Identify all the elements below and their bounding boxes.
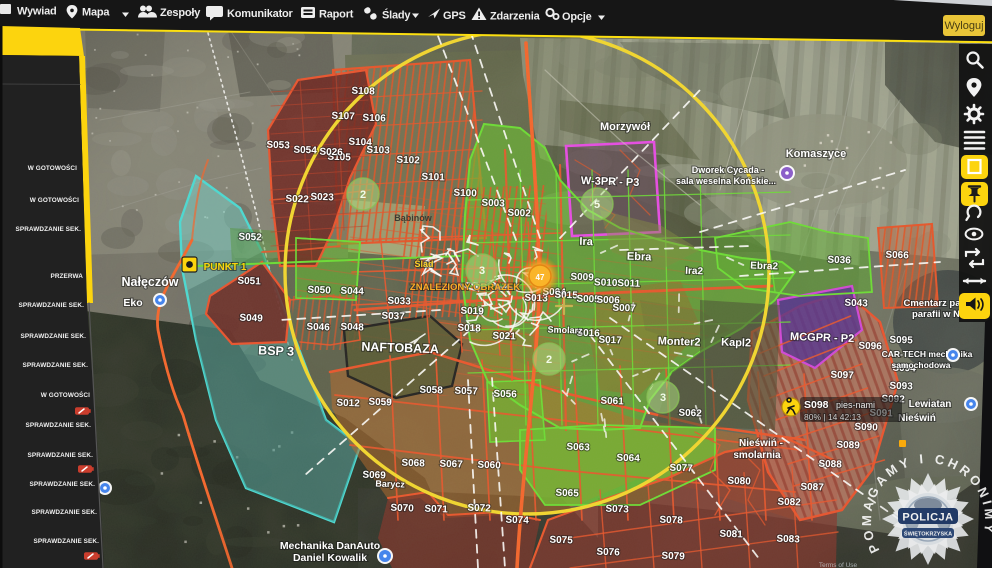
svg-text:Komunikator: Komunikator [227, 8, 294, 20]
svg-text:Kapl2: Kapl2 [721, 336, 751, 349]
svg-text:S097: S097 [830, 370, 854, 382]
svg-text:Mapa: Mapa [82, 6, 110, 18]
svg-text:samochodowa: samochodowa [891, 360, 950, 370]
svg-text:S075: S075 [549, 535, 573, 547]
svg-text:S096: S096 [858, 341, 882, 353]
svg-text:S049: S049 [239, 313, 263, 325]
svg-text:Opcje: Opcje [562, 11, 592, 23]
svg-text:sala weselna Końskie...: sala weselna Końskie... [676, 176, 776, 186]
svg-text:Bąbinów: Bąbinów [394, 213, 432, 223]
svg-text:Terms of Use: Terms of Use [819, 562, 858, 568]
svg-text:S098: S098 [804, 399, 829, 411]
svg-text:S088: S088 [818, 459, 842, 471]
svg-text:S090: S090 [854, 422, 878, 434]
svg-text:Eko: Eko [123, 297, 142, 309]
svg-text:S018: S018 [457, 323, 481, 335]
svg-text:Ślady: Ślady [382, 8, 411, 21]
svg-text:S052: S052 [238, 232, 262, 244]
svg-text:S060: S060 [477, 460, 501, 472]
svg-text:SPRAWDZANIE SEK.: SPRAWDZANIE SEK. [27, 452, 93, 459]
svg-text:Dworek Cycada -: Dworek Cycada - [692, 165, 765, 175]
svg-text:S087: S087 [800, 482, 824, 494]
svg-text:S026: S026 [319, 147, 343, 159]
svg-text:S036: S036 [827, 255, 851, 267]
svg-text:S007: S007 [612, 303, 636, 315]
svg-text:S072: S072 [467, 503, 491, 515]
svg-text:S082: S082 [777, 497, 801, 509]
svg-text:W GOTOWOŚCI: W GOTOWOŚCI [30, 195, 79, 204]
svg-text:S081: S081 [719, 529, 743, 541]
svg-text:S106: S106 [362, 113, 386, 125]
svg-text:W-3PR - P3: W-3PR - P3 [581, 175, 640, 189]
svg-text:Ślad: Ślad [414, 258, 433, 269]
svg-text:Daniel Kowalik: Daniel Kowalik [293, 552, 367, 564]
svg-text:S017: S017 [598, 335, 622, 347]
svg-text:S044: S044 [340, 286, 364, 298]
svg-text:80% | 14 42:13: 80% | 14 42:13 [804, 412, 861, 422]
svg-text:SPRAWDZANIE SEK.: SPRAWDZANIE SEK. [33, 538, 99, 545]
svg-text:smolarnia: smolarnia [733, 450, 781, 461]
svg-text:S057: S057 [454, 386, 478, 398]
svg-text:S002: S002 [507, 208, 531, 220]
svg-text:S012: S012 [336, 398, 360, 410]
svg-text:S080: S080 [727, 476, 751, 488]
svg-text:S076: S076 [596, 547, 620, 559]
svg-text:SPRAWDZANIE SEK.: SPRAWDZANIE SEK. [31, 509, 97, 516]
svg-text:Wywiad: Wywiad [17, 6, 57, 18]
svg-text:S093: S093 [889, 381, 913, 393]
svg-text:SPRAWDZANIE SEK.: SPRAWDZANIE SEK. [20, 333, 86, 340]
svg-text:S003: S003 [481, 198, 505, 210]
svg-text:PUNKT 1: PUNKT 1 [204, 262, 247, 273]
svg-text:S074: S074 [505, 515, 529, 527]
svg-text:W GOTOWOŚCI: W GOTOWOŚCI [28, 163, 77, 172]
svg-text:S037: S037 [381, 311, 405, 323]
svg-text:Smolarz: Smolarz [547, 324, 583, 335]
svg-text:Ira2: Ira2 [685, 266, 704, 278]
svg-text:S021: S021 [492, 331, 516, 343]
svg-text:S073: S073 [605, 504, 629, 516]
svg-text:3: 3 [479, 265, 485, 277]
svg-text:S100: S100 [453, 188, 477, 200]
svg-text:S053: S053 [266, 140, 290, 152]
svg-text:3: 3 [660, 392, 666, 404]
svg-text:Mechanika DanAuto: Mechanika DanAuto [280, 540, 380, 552]
svg-text:Zespoły: Zespoły [160, 7, 201, 19]
svg-text:S043: S043 [844, 298, 868, 310]
svg-text:S050: S050 [307, 285, 331, 297]
svg-text:47: 47 [536, 273, 545, 282]
svg-text:Nieświń: Nieświń [898, 413, 936, 424]
svg-text:S064: S064 [616, 453, 640, 465]
svg-text:Wyloguj: Wyloguj [944, 20, 983, 32]
svg-text:S070: S070 [390, 503, 414, 515]
svg-text:S083: S083 [776, 534, 800, 546]
svg-text:S056: S056 [493, 389, 517, 401]
svg-text:S063: S063 [566, 442, 590, 454]
svg-text:S077: S077 [669, 463, 693, 475]
svg-text:S033: S033 [387, 296, 411, 308]
svg-text:W GOTOWOŚCI: W GOTOWOŚCI [41, 390, 90, 399]
svg-text:S071: S071 [424, 504, 448, 516]
svg-text:pies-nami: pies-nami [836, 400, 875, 410]
svg-text:S059: S059 [368, 397, 392, 409]
svg-text:S061: S061 [600, 396, 624, 408]
svg-text:Raport: Raport [319, 9, 354, 21]
svg-text:S022: S022 [285, 194, 309, 206]
svg-text:Ebra: Ebra [627, 251, 653, 264]
svg-text:SPRAWDZANIE SEK.: SPRAWDZANIE SEK. [22, 362, 88, 369]
svg-text:S010S011: S010S011 [594, 277, 641, 290]
svg-text:Monter2: Monter2 [658, 335, 701, 348]
svg-text:S095: S095 [889, 335, 913, 347]
svg-text:GPS: GPS [443, 10, 466, 22]
svg-text:BSP 3: BSP 3 [258, 343, 294, 358]
svg-text:S102: S102 [396, 155, 420, 167]
svg-text:2: 2 [360, 189, 366, 201]
svg-text:S048: S048 [340, 322, 364, 334]
svg-text:ZNALEZIONY OBRAZEK: ZNALEZIONY OBRAZEK [410, 282, 520, 293]
svg-text:S009: S009 [570, 272, 594, 284]
svg-text:S062: S062 [678, 408, 702, 420]
svg-text:S015: S015 [554, 290, 578, 302]
svg-text:S078: S078 [659, 515, 683, 527]
svg-text:Nieświń -: Nieświń - [739, 438, 783, 449]
svg-text:Morzywół: Morzywół [600, 121, 650, 133]
svg-text:ŚWIĘTOKRZYSKA: ŚWIĘTOKRZYSKA [904, 531, 952, 538]
svg-text:Komaszyce: Komaszyce [786, 148, 847, 160]
svg-text:S107: S107 [331, 111, 355, 123]
svg-text:2: 2 [546, 354, 552, 366]
svg-text:S068: S068 [401, 458, 425, 470]
svg-text:S054: S054 [293, 145, 317, 157]
svg-text:POLICJA: POLICJA [902, 512, 953, 524]
svg-text:Barycz: Barycz [375, 478, 405, 489]
svg-text:S046: S046 [306, 322, 330, 334]
svg-text:S089: S089 [836, 440, 860, 452]
svg-text:Ira: Ira [579, 236, 594, 248]
svg-text:S058: S058 [419, 385, 443, 397]
svg-text:S065: S065 [555, 488, 579, 500]
svg-text:Cmentarz pa: Cmentarz pa [903, 298, 961, 309]
svg-text:parafii w N: parafii w N [912, 309, 960, 320]
svg-text:S067: S067 [439, 459, 463, 471]
svg-text:Ebra2: Ebra2 [750, 261, 779, 273]
svg-text:SPRAWDZANIE SEK.: SPRAWDZANIE SEK. [29, 481, 95, 488]
svg-text:S051: S051 [237, 276, 261, 288]
svg-text:PRZERWA: PRZERWA [50, 273, 83, 280]
svg-text:MCGPR - P2: MCGPR - P2 [790, 331, 855, 345]
svg-text:NAFTOBAZA: NAFTOBAZA [361, 340, 439, 357]
svg-text:Nałęczów: Nałęczów [122, 275, 179, 289]
svg-text:S019: S019 [460, 306, 484, 318]
svg-text:S101: S101 [421, 172, 445, 184]
svg-text:Lewiatan: Lewiatan [909, 399, 952, 410]
svg-text:S103: S103 [366, 145, 390, 157]
svg-text:S079: S079 [661, 551, 685, 563]
svg-text:S023: S023 [310, 192, 334, 204]
svg-text:SPRAWDZANIE SEK.: SPRAWDZANIE SEK. [18, 302, 84, 309]
svg-text:5: 5 [594, 199, 600, 211]
svg-text:SPRAWDZANIE SEK.: SPRAWDZANIE SEK. [25, 422, 91, 429]
svg-text:S108: S108 [351, 86, 375, 98]
svg-text:Zdarzenia: Zdarzenia [490, 10, 541, 22]
svg-text:SPRAWDZANIE SEK.: SPRAWDZANIE SEK. [15, 226, 81, 233]
svg-text:S066: S066 [885, 250, 909, 262]
